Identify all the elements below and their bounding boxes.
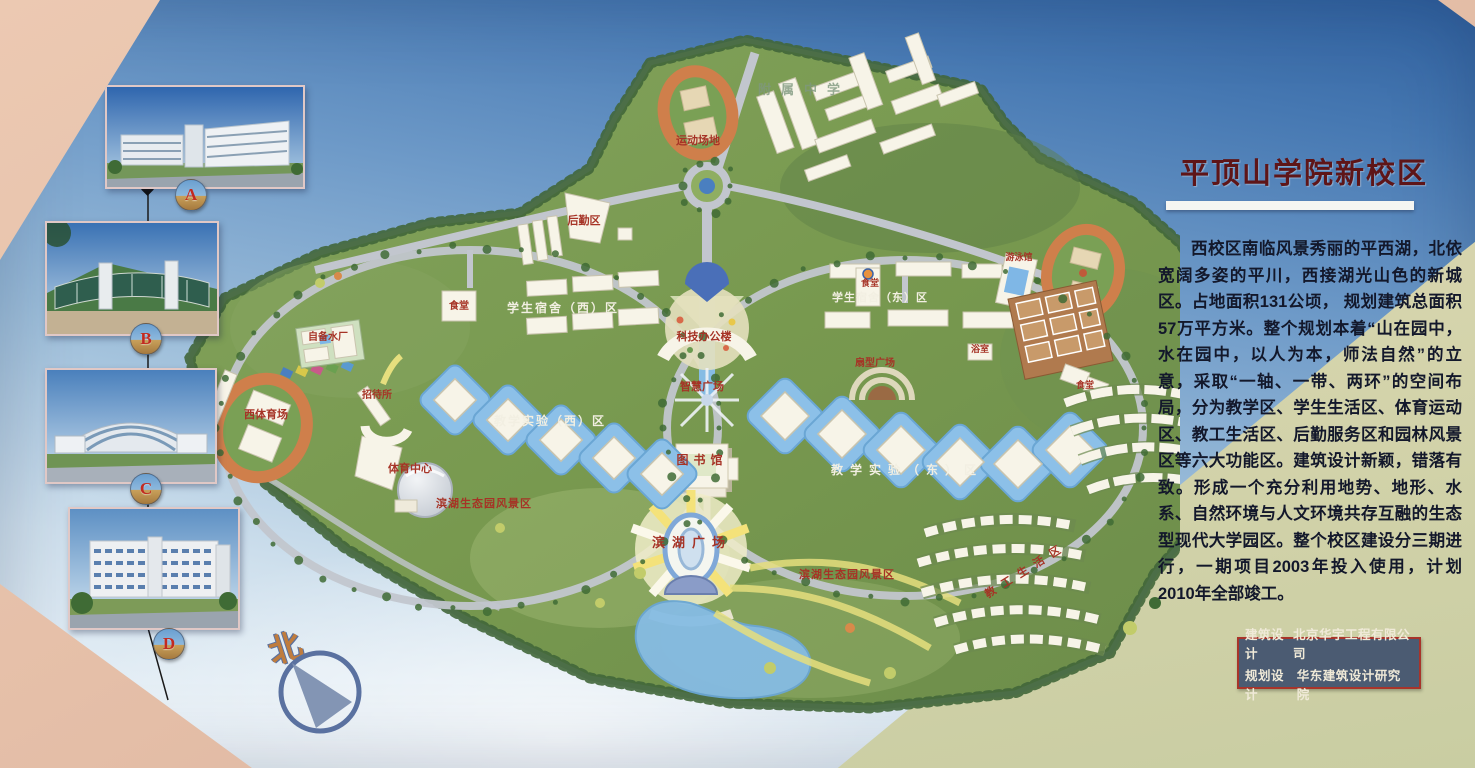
- map-label: 教学实验（西）区: [493, 413, 606, 428]
- map-label: 食堂: [860, 277, 879, 288]
- info-panel: 平顶山学院新校区 西校区南临风景秀丽的平西湖，北依宽阔多姿的平川，西接湖光山色的…: [1152, 150, 1470, 607]
- badge-letter: A: [185, 185, 197, 205]
- credit-label: 规划设计: [1245, 665, 1297, 703]
- map-label: 滨湖广场: [652, 535, 732, 550]
- photo-building-c: [45, 368, 217, 484]
- map-label: 招待所: [362, 388, 392, 401]
- map-label: 后勤区: [568, 213, 601, 227]
- billboard-panel: 运动场地附属中学后勤区食堂学生宿舍（西）区自备水厂招待所西体育场体育中心科技办公…: [0, 0, 1475, 768]
- map-label: 附属中学: [758, 82, 850, 97]
- map-label: 浴室: [971, 343, 989, 354]
- photo-building-a: [105, 85, 305, 189]
- title-underline: [1166, 201, 1414, 210]
- map-label: 运动场地: [676, 133, 720, 147]
- credit-row-architecture: 建筑设计 北京华宇工程有限公司: [1245, 624, 1413, 662]
- map-label: 图书馆: [676, 452, 727, 467]
- map-label: 西体育场: [244, 407, 288, 421]
- map-label: 滨湖生态园风景区: [799, 567, 895, 581]
- map-label: 体育中心: [388, 461, 432, 475]
- map-label: 自备水厂: [308, 330, 348, 343]
- photo-badge-a: A: [175, 179, 207, 211]
- photo-badge-c: C: [130, 473, 162, 505]
- board-title: 平顶山学院新校区: [1180, 150, 1470, 192]
- photo-badge-b: B: [130, 323, 162, 355]
- badge-letter: B: [140, 329, 151, 349]
- map-label: 学生宿舍（东）区: [832, 290, 928, 304]
- map-label: 食堂: [1075, 379, 1094, 390]
- map-label: 智慧广场: [680, 379, 724, 393]
- map-label: 扇型广场: [855, 356, 895, 369]
- map-label: 食堂: [448, 299, 469, 312]
- photo-badge-d: D: [153, 628, 185, 660]
- credit-value: 华东建筑设计研究院: [1297, 665, 1413, 703]
- credit-value: 北京华宇工程有限公司: [1293, 624, 1413, 662]
- credits-box: 建筑设计 北京华宇工程有限公司 规划设计 华东建筑设计研究院: [1237, 637, 1421, 689]
- map-label: 教学实验（东）区: [830, 462, 983, 477]
- map-label: 科技办公楼: [677, 329, 732, 343]
- map-label: 游泳馆: [1005, 251, 1032, 262]
- badge-letter: C: [140, 479, 152, 499]
- map-label: 学生宿舍（西）区: [507, 300, 619, 315]
- photo-building-d: [68, 507, 240, 630]
- photo-building-b: [45, 221, 219, 336]
- photographed-campus-billboard: { "title": "平顶山学院新校区", "description": "西…: [0, 0, 1475, 768]
- badge-letter: D: [163, 634, 175, 654]
- water-plant: [296, 320, 365, 369]
- credit-label: 建筑设计: [1245, 624, 1293, 662]
- compass-icon: [252, 615, 392, 750]
- campus-description: 西校区南临风景秀丽的平西湖，北依宽阔多姿的平川，西接湖光山色的新城区。占地面积1…: [1158, 236, 1462, 607]
- credit-row-planning: 规划设计 华东建筑设计研究院: [1245, 665, 1413, 703]
- map-label: 滨湖生态园风景区: [436, 496, 532, 510]
